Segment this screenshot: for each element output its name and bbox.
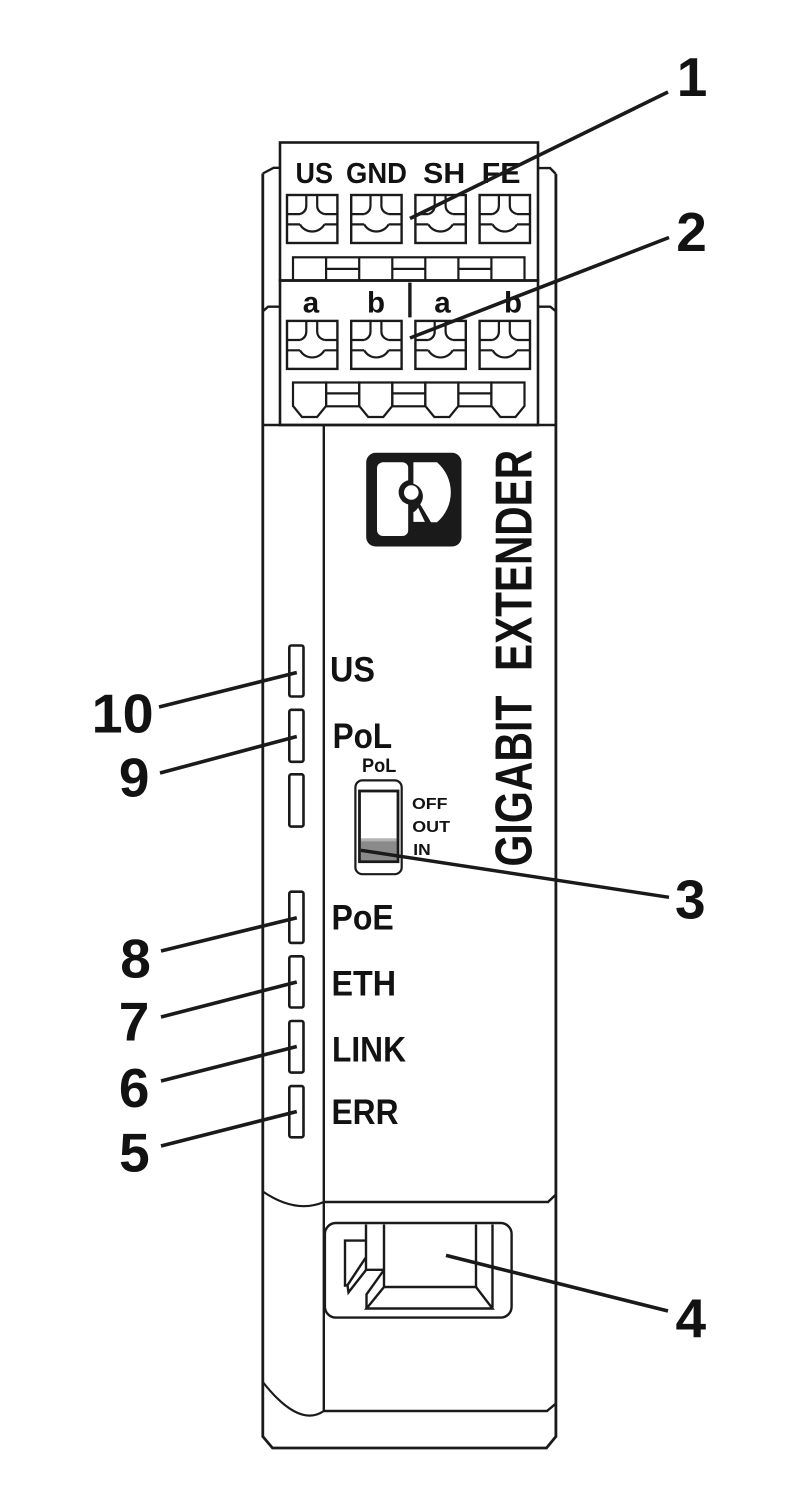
svg-text:PoE: PoE	[332, 897, 394, 937]
svg-text:b: b	[367, 286, 385, 319]
svg-text:a: a	[303, 286, 320, 319]
svg-text:GND: GND	[346, 158, 407, 190]
svg-text:1: 1	[677, 46, 708, 108]
svg-text:6: 6	[119, 1057, 150, 1119]
svg-text:8: 8	[120, 927, 151, 989]
svg-text:7: 7	[119, 991, 150, 1053]
svg-text:EXTENDER: EXTENDER	[485, 450, 543, 671]
svg-text:PoL: PoL	[362, 755, 396, 777]
svg-text:PoL: PoL	[333, 716, 393, 756]
svg-text:IN: IN	[413, 842, 430, 859]
svg-text:ERR: ERR	[332, 1092, 399, 1132]
svg-text:GIGABIT: GIGABIT	[485, 696, 543, 867]
svg-text:US: US	[296, 158, 334, 190]
svg-text:2: 2	[676, 201, 707, 263]
svg-text:OUT: OUT	[412, 819, 450, 836]
svg-text:LINK: LINK	[332, 1029, 406, 1069]
svg-text:4: 4	[676, 1287, 707, 1349]
svg-text:a: a	[434, 286, 451, 319]
svg-text:ETH: ETH	[332, 963, 397, 1003]
svg-text:SH: SH	[423, 158, 465, 190]
svg-text:9: 9	[119, 746, 150, 808]
svg-text:3: 3	[675, 869, 706, 931]
svg-text:b: b	[504, 286, 522, 319]
svg-text:10: 10	[92, 683, 154, 745]
svg-text:OFF: OFF	[412, 796, 448, 813]
svg-text:5: 5	[119, 1121, 150, 1183]
svg-text:US: US	[330, 649, 375, 689]
